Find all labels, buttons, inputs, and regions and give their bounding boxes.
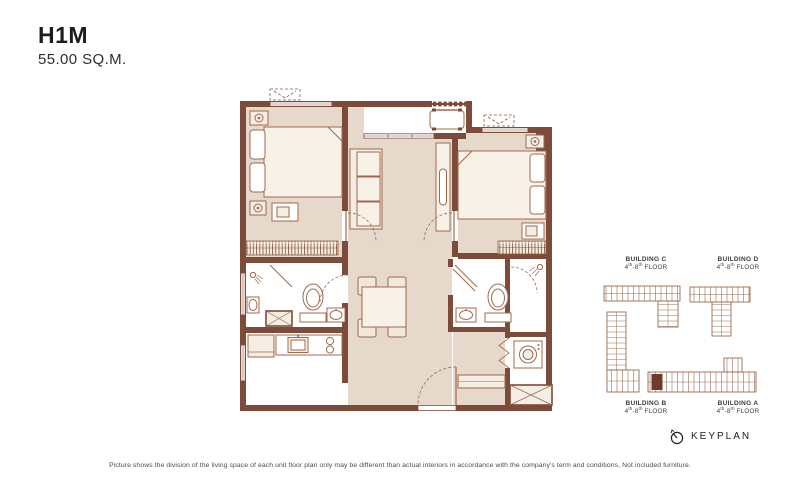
unit-area: 55.00 SQ.M. bbox=[38, 51, 127, 68]
sink-1 bbox=[327, 308, 345, 322]
wall-bathroom-2-bottom bbox=[448, 327, 510, 332]
balcony-condenser bbox=[430, 109, 464, 131]
keyplan-building-d bbox=[690, 287, 750, 336]
wall-bedroom-1-bottom bbox=[240, 257, 348, 263]
wall-top-balcony bbox=[364, 101, 432, 107]
compass-north-icon bbox=[668, 428, 685, 445]
wall-bedroom-2-left-b bbox=[452, 241, 458, 257]
keyplan-building-b bbox=[607, 312, 639, 392]
sink-2 bbox=[456, 308, 476, 322]
keyplan-building-c-label: BUILDING C 4th-8th FLOOR bbox=[596, 256, 696, 271]
keyplan-label: KEYPLAN bbox=[691, 431, 751, 442]
sofa-cushion-3 bbox=[357, 202, 380, 226]
wall-bedroom-1-right bbox=[342, 107, 348, 211]
keyplan-building-a bbox=[648, 358, 756, 392]
window-left-kitchen bbox=[241, 345, 245, 381]
disclaimer-text: Picture shows the division of the living… bbox=[0, 462, 800, 469]
bed-1-mattress bbox=[264, 127, 342, 197]
floorplan-page: H1M 55.00 SQ.M. bbox=[0, 0, 800, 491]
keyplan-building-d-label: BUILDING D 4th-8th FLOOR bbox=[688, 256, 788, 271]
unit-code: H1M bbox=[38, 22, 127, 48]
window-left-bath bbox=[241, 273, 245, 315]
ac-unit-bedroom-2 bbox=[484, 115, 514, 126]
kitchen bbox=[248, 335, 342, 357]
sofa-cushion-1 bbox=[357, 152, 380, 176]
hall-floor bbox=[453, 332, 505, 405]
bedroom-1-bench-tray bbox=[277, 207, 289, 217]
kitchen-sink bbox=[288, 335, 308, 353]
keyplan-unit-highlight bbox=[652, 374, 663, 390]
floorplan-drawing bbox=[230, 87, 570, 422]
wall-mid-a bbox=[342, 263, 348, 275]
bed-1-pillow-b bbox=[250, 163, 265, 192]
window-bedroom-1-top bbox=[270, 102, 332, 106]
keyplan-caption: KEYPLAN bbox=[668, 428, 751, 445]
washing-machine bbox=[514, 341, 542, 368]
unit-header: H1M 55.00 SQ.M. bbox=[38, 22, 127, 68]
dining-table bbox=[362, 287, 406, 327]
wall-balcony-bottom bbox=[434, 133, 466, 139]
wall-bedroom-1-right-b bbox=[342, 241, 348, 257]
sofa-cushion-2 bbox=[357, 177, 380, 201]
bedroom-2-table-tray bbox=[526, 226, 537, 236]
entrance-threshold bbox=[418, 406, 456, 411]
wall-bathroom-2-left-a bbox=[448, 259, 453, 267]
keyplan-map bbox=[600, 282, 790, 400]
wall-bottom-right bbox=[456, 405, 552, 411]
wall-utility-top bbox=[510, 332, 546, 337]
wall-bathroom-1-bottom bbox=[240, 327, 348, 333]
keyplan-building-a-label: BUILDING A 4th-8th FLOOR bbox=[688, 400, 788, 415]
entry-console bbox=[458, 375, 505, 388]
window-bedroom-2-top bbox=[482, 128, 528, 132]
tv bbox=[440, 169, 447, 205]
bed-2-pillow-b bbox=[530, 186, 545, 214]
ac-unit-bedroom-1 bbox=[270, 89, 300, 100]
wall-right bbox=[546, 127, 552, 411]
wall-bathroom-2-left-b bbox=[448, 295, 453, 332]
fridge bbox=[248, 335, 274, 357]
keyplan-building-b-label: BUILDING B 4th-8th FLOOR bbox=[596, 400, 696, 415]
bed-1-pillow-a bbox=[250, 130, 265, 159]
wall-bedroom-2-left bbox=[452, 133, 458, 211]
window-balcony-doors bbox=[364, 134, 434, 138]
shaft-left bbox=[266, 311, 292, 326]
bed-2-pillow-a bbox=[530, 154, 545, 182]
balcony-railing bbox=[432, 102, 470, 107]
keyplan-buildings bbox=[604, 286, 756, 392]
wall-bottom-left bbox=[240, 405, 418, 411]
shaft-right bbox=[510, 385, 552, 405]
